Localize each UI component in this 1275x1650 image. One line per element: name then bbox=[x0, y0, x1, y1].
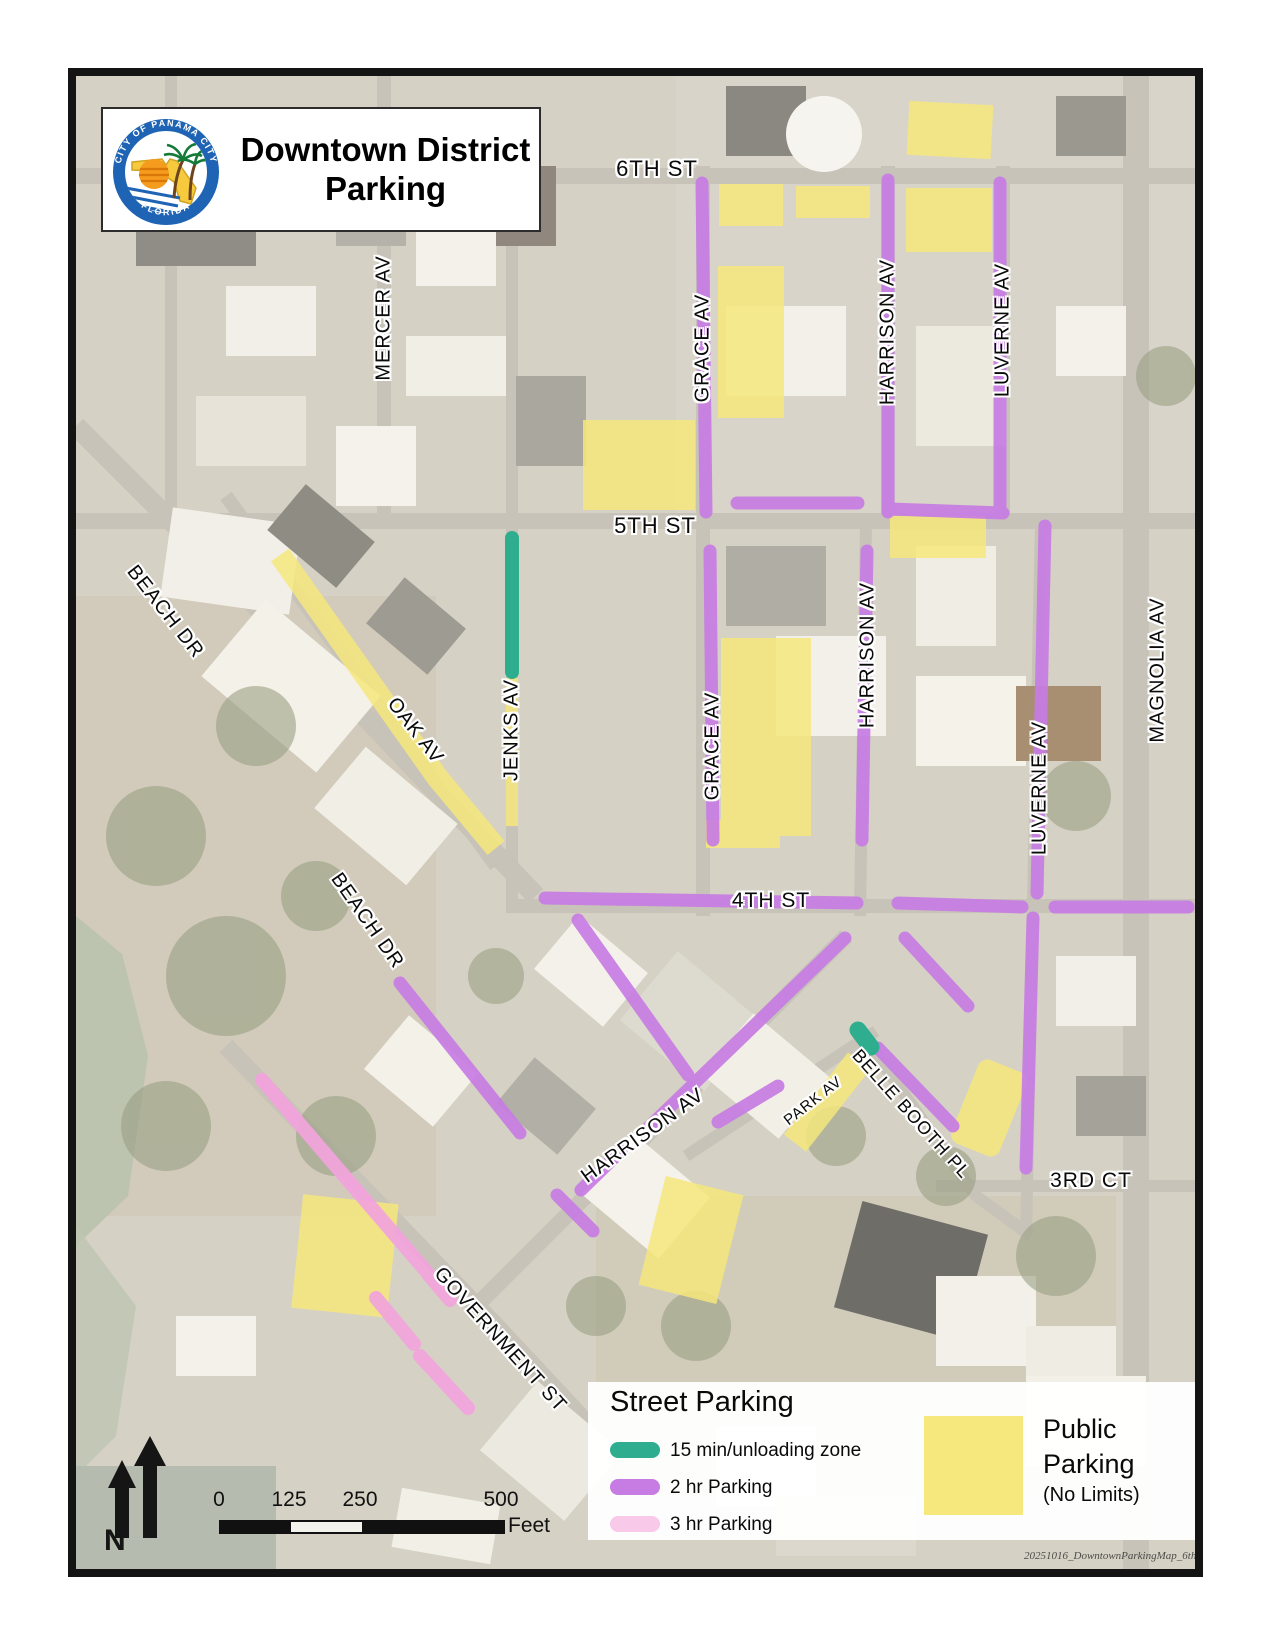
north-letter: N bbox=[104, 1524, 126, 1552]
legend-title: Street Parking bbox=[610, 1386, 794, 1419]
map-watermark: 20251016_DowntownParkingMap_6th bbox=[1024, 1550, 1195, 1562]
street-label-grace-av-north: GRACE AV bbox=[692, 294, 715, 403]
public-parking-line3: (No Limits) bbox=[1043, 1482, 1140, 1508]
public-parking-line1: Public bbox=[1043, 1412, 1140, 1447]
legend-label-3hr: 3 hr Parking bbox=[670, 1514, 772, 1536]
two-hour-swatch bbox=[610, 1479, 660, 1495]
street-label-luverne-av-mid: LUVERNE AV bbox=[1029, 721, 1052, 855]
map-title-line1: Downtown District bbox=[241, 131, 531, 170]
city-of-panama-city-logo: CITY OF PANAMA CITY FLORIDA bbox=[111, 117, 221, 227]
scale-tick-250: 250 bbox=[342, 1488, 377, 1512]
legend-label-2hr: 2 hr Parking bbox=[670, 1477, 772, 1499]
street-label-grace-av-mid: GRACE AV bbox=[702, 692, 725, 801]
north-arrow-icon: N bbox=[90, 1432, 182, 1552]
street-label-luverne-av-north: LUVERNE AV bbox=[992, 263, 1015, 397]
street-label-6th-st: 6TH ST bbox=[616, 156, 698, 182]
legend: Street Parking 15 min/unloading zone 2 h… bbox=[588, 1382, 1195, 1540]
scale-bar-alt-segment bbox=[291, 1522, 362, 1532]
street-label-magnolia-av: MAGNOLIA AV bbox=[1147, 597, 1170, 742]
title-block: CITY OF PANAMA CITY FLORIDA Downtown Dis… bbox=[101, 107, 541, 232]
street-label-harrison-av-north: HARRISON AV bbox=[877, 259, 900, 405]
scale-tick-500: 500 bbox=[483, 1488, 518, 1512]
street-label-harrison-av-mid: HARRISON AV bbox=[857, 582, 880, 728]
scale-tick-125: 125 bbox=[271, 1488, 306, 1512]
parking-map-page: 6TH ST 5TH ST 4TH ST 3RD CT MERCER AV GR… bbox=[0, 0, 1275, 1650]
scale-unit-label: Feet bbox=[508, 1514, 550, 1538]
street-label-4th-st: 4TH ST bbox=[732, 889, 810, 913]
scale-tick-0: 0 bbox=[213, 1488, 225, 1512]
unloading-zone-swatch bbox=[610, 1442, 660, 1458]
street-label-mercer-av: MERCER AV bbox=[373, 255, 396, 380]
public-parking-label: Public Parking (No Limits) bbox=[1043, 1412, 1140, 1508]
public-parking-line2: Parking bbox=[1043, 1447, 1140, 1482]
three-hour-swatch bbox=[610, 1516, 660, 1532]
street-label-jenks-av: JENKS AV bbox=[501, 679, 524, 781]
map-canvas: 6TH ST 5TH ST 4TH ST 3RD CT MERCER AV GR… bbox=[76, 76, 1195, 1569]
parking-overlay bbox=[76, 76, 1195, 1569]
street-label-5th-st: 5TH ST bbox=[614, 513, 696, 539]
public-parking-swatch bbox=[924, 1416, 1023, 1515]
map-title-line2: Parking bbox=[325, 170, 446, 209]
map-frame: 6TH ST 5TH ST 4TH ST 3RD CT MERCER AV GR… bbox=[68, 68, 1203, 1577]
street-label-3rd-ct: 3RD CT bbox=[1050, 1169, 1132, 1193]
legend-label-unloading: 15 min/unloading zone bbox=[670, 1440, 861, 1462]
scale-bar-rule bbox=[219, 1520, 505, 1534]
